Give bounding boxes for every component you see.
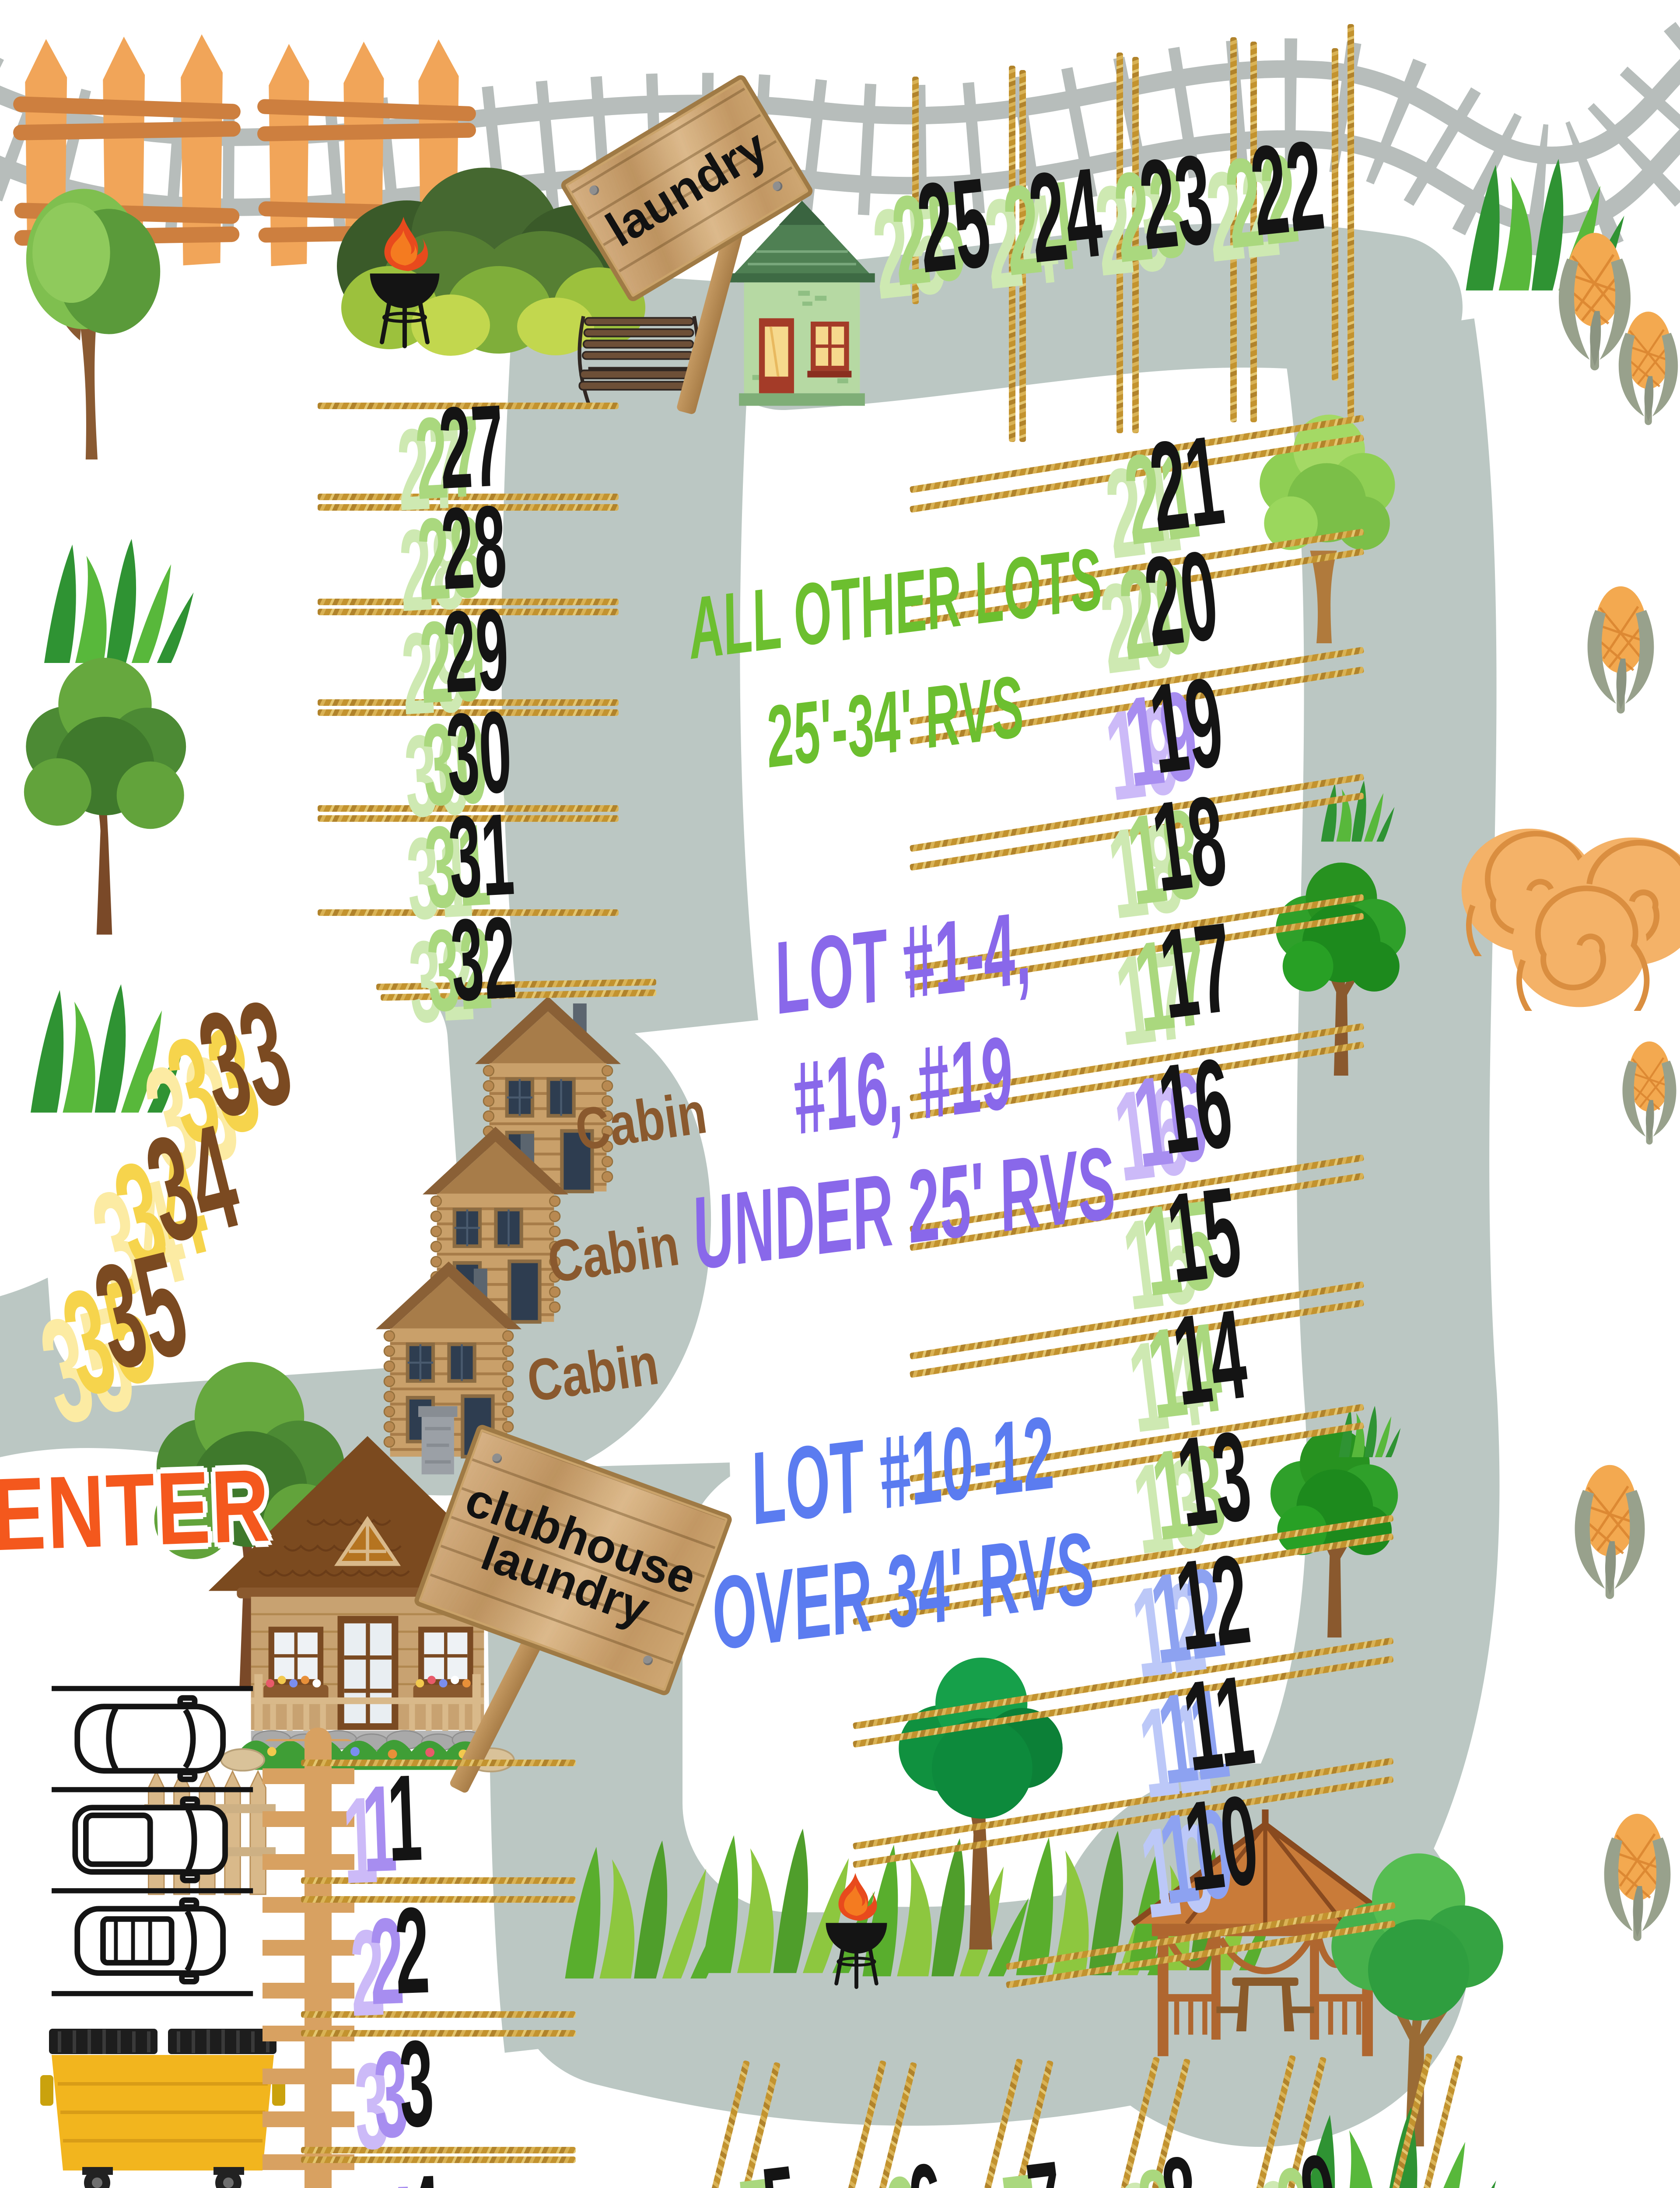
lot-divider bbox=[1132, 57, 1139, 433]
parking-spaces-icon bbox=[52, 1686, 257, 2003]
grass-icon bbox=[22, 974, 197, 1120]
corn-icon bbox=[1567, 1427, 1652, 1624]
bbq-grill-icon bbox=[359, 214, 451, 350]
wood-fence bbox=[262, 1728, 357, 2188]
nail-icon bbox=[771, 179, 784, 193]
lot-number-32: 32 bbox=[448, 900, 518, 1019]
lot-divider bbox=[301, 1877, 576, 1884]
tree-icon bbox=[1261, 857, 1418, 1076]
enter-label: ENTER bbox=[0, 1453, 272, 1566]
legend-purple-line2: #16, #19 bbox=[787, 1021, 1018, 1150]
lot-number-24: 24 bbox=[1024, 148, 1107, 282]
lot-divider bbox=[1116, 53, 1123, 433]
corn-icon bbox=[1580, 552, 1661, 736]
corn-icon bbox=[1612, 258, 1680, 468]
lot-number-23: 23 bbox=[1134, 135, 1218, 269]
nail-icon bbox=[588, 184, 601, 197]
rv-park-map: laundry Cabin Cabin Cabin clubhouse laun… bbox=[0, 0, 1680, 2188]
corn-icon bbox=[1617, 994, 1680, 1182]
lot-divider bbox=[1230, 37, 1237, 422]
fence-rail bbox=[304, 1728, 332, 2188]
lot-number-1: 1 bbox=[385, 1757, 424, 1880]
tree-icon bbox=[17, 635, 192, 936]
nail-icon bbox=[642, 1654, 654, 1666]
lot-number-22: 22 bbox=[1246, 121, 1329, 255]
lot-divider bbox=[1347, 24, 1354, 418]
nail-icon bbox=[491, 1452, 503, 1464]
hay-bale-icon bbox=[1507, 880, 1652, 1011]
trash-dumpster-icon bbox=[40, 2018, 285, 2188]
lot-divider bbox=[301, 2147, 576, 2153]
tree-icon bbox=[21, 184, 165, 459]
lot-divider bbox=[301, 1760, 576, 1766]
lot-number-2: 2 bbox=[393, 1889, 431, 2013]
corn-icon bbox=[1597, 1773, 1678, 1970]
lot-number-3: 3 bbox=[397, 2022, 436, 2146]
lot-divider bbox=[1009, 66, 1015, 442]
lot-divider bbox=[301, 2030, 576, 2037]
lot-divider bbox=[301, 2011, 576, 2018]
lot-number-4: 4 bbox=[404, 2157, 443, 2188]
lot-divider bbox=[1332, 48, 1338, 381]
lot-divider bbox=[301, 1896, 576, 1903]
lot-number-25: 25 bbox=[912, 158, 996, 292]
lot-divider bbox=[1019, 70, 1026, 442]
